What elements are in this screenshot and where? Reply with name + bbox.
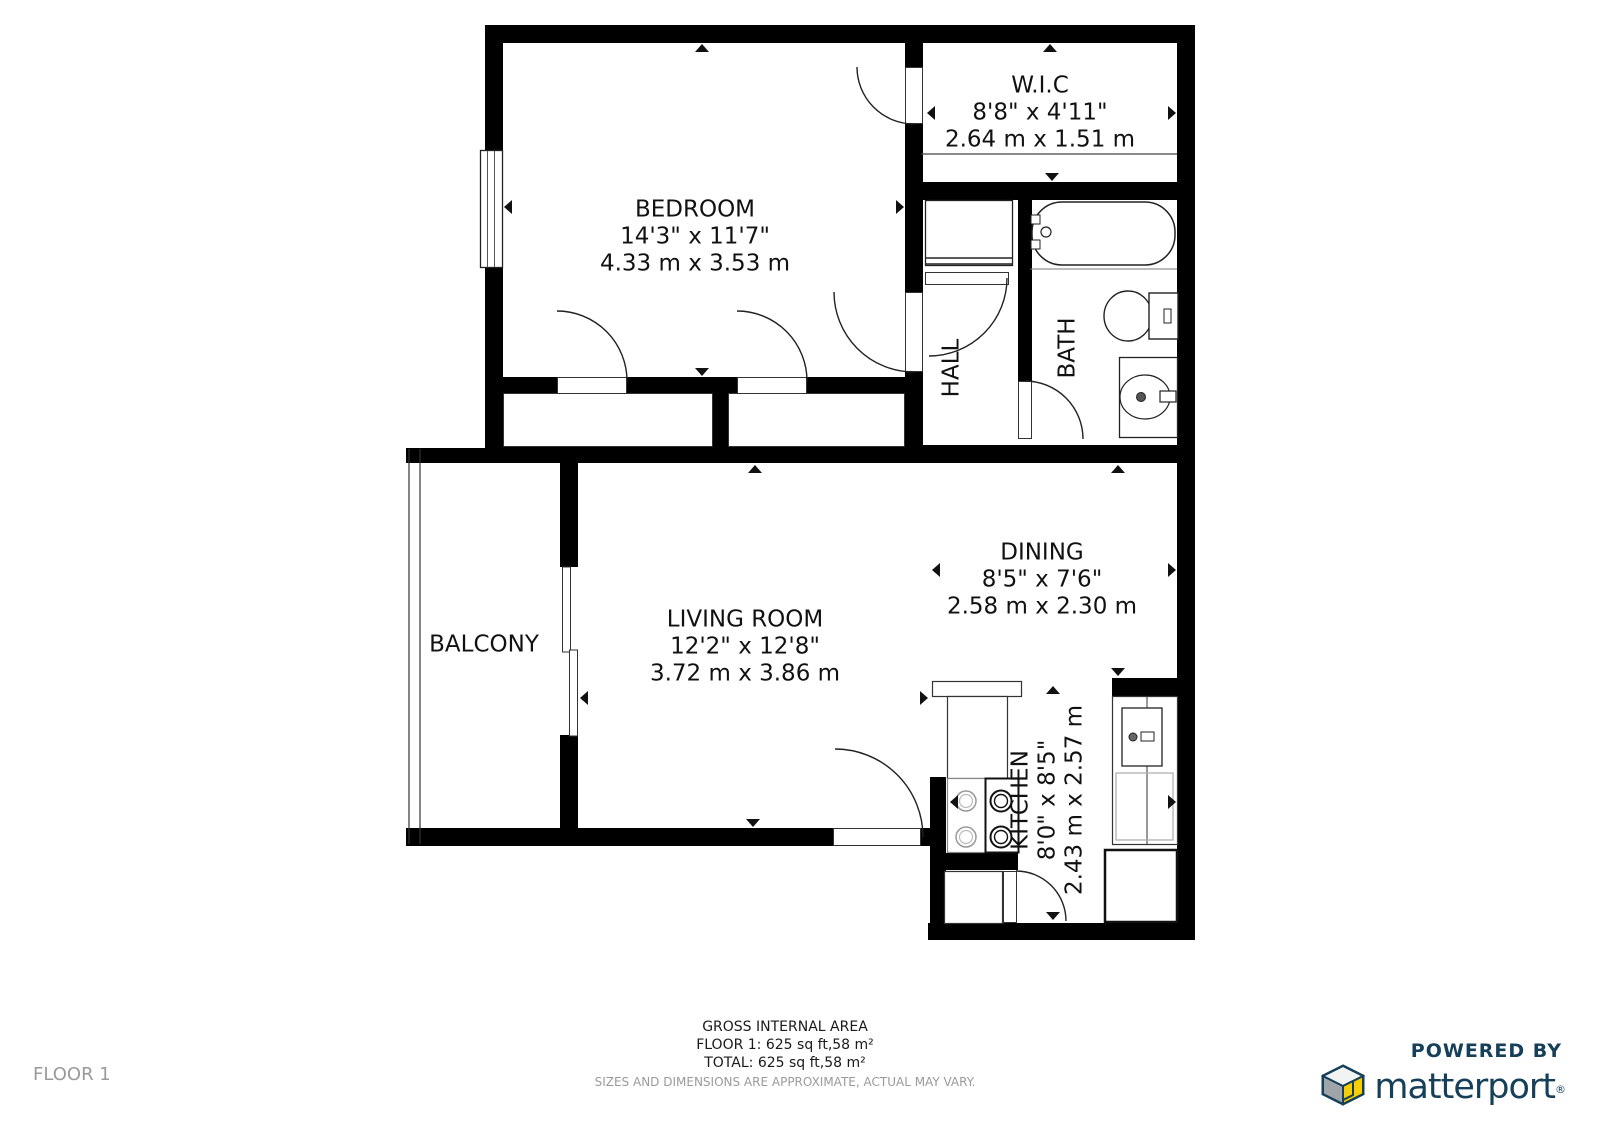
door-leaf-closet1 [557, 377, 627, 394]
wall-bedroom-wic-divider-b [905, 124, 923, 292]
room-label-living: LIVING ROOM 12'2" x 12'8" 3.72 m x 3.86 … [650, 607, 840, 688]
hall-closet-icon [925, 201, 1013, 266]
fixtures-overlay [0, 0, 1600, 1131]
total-area-line: TOTAL: 625 sq ft,58 m² [595, 1054, 976, 1072]
wall-kitchen-bottom [928, 923, 1195, 940]
floorplan-canvas: BEDROOM 14'3" x 11'7" 4.33 m x 3.53 m W.… [0, 0, 1600, 1131]
window-icon [481, 151, 503, 268]
sliding-door-icon [563, 567, 578, 736]
gross-area-title: GROSS INTERNAL AREA [595, 1018, 976, 1036]
matterport-wordmark: matterport [1374, 1070, 1555, 1105]
door-leaf-wic [905, 67, 923, 124]
door-leaf-bedroom [905, 292, 923, 372]
wall-bedroom-bottom-b [627, 377, 737, 393]
bath-sink-icon [1120, 358, 1178, 438]
room-dims-m: 4.33 m x 3.53 m [600, 251, 790, 278]
wall-left-lower [485, 267, 503, 463]
wall-closet-divider [713, 393, 728, 447]
room-name: KITCHEN [1008, 705, 1035, 895]
room-dims-ft: 12'2" x 12'8" [650, 634, 840, 661]
wall-bedroom-wic-divider-a [905, 43, 923, 67]
toilet-icon [1104, 291, 1178, 341]
room-label-kitchen: KITCHEN 8'0" x 8'5" 2.43 m x 2.57 m [1008, 705, 1089, 895]
room-name: W.I.C [945, 73, 1135, 100]
door-arc-bath [1025, 381, 1083, 439]
room-dims-ft: 8'5" x 7'6" [947, 567, 1137, 594]
wall-stove-bottom [930, 853, 1018, 870]
room-name: HALL [939, 339, 966, 398]
door-arc-closet1 [557, 311, 627, 381]
room-label-balcony: BALCONY [429, 632, 539, 659]
floor-label: FLOOR 1 [33, 1064, 111, 1085]
wall-closet-bottom [485, 447, 905, 463]
wall-wic-bottom [905, 182, 1177, 200]
bathtub-icon [1030, 202, 1177, 269]
door-leaf-hall-closet [925, 272, 1009, 285]
wall-bottom-left [406, 828, 833, 846]
wall-bedroom-bottom-c [807, 377, 905, 393]
room-dims-m: 2.58 m x 2.30 m [947, 594, 1137, 621]
room-label-bedroom: BEDROOM 14'3" x 11'7" 4.33 m x 3.53 m [600, 197, 790, 278]
matterport-cube-icon [1320, 1064, 1366, 1110]
door-arc-living-entry [835, 749, 923, 837]
room-dims-ft: 8'8" x 4'11" [945, 100, 1135, 127]
wall-left-upper [485, 25, 503, 151]
floor-area-line: FLOOR 1: 625 sq ft,58 m² [595, 1036, 976, 1054]
room-label-hall: HALL [939, 339, 966, 398]
door-leaf-living-entry [833, 828, 921, 846]
door-leaf-closet2 [737, 377, 807, 394]
powered-by-text: POWERED BY [1320, 1040, 1562, 1062]
wall-balcony-right-upper [560, 448, 578, 567]
registered-symbol: ® [1555, 1084, 1566, 1095]
door-arc-closet2 [737, 311, 807, 381]
door-arc-bedroom [834, 292, 914, 372]
room-label-wic: W.I.C 8'8" x 4'11" 2.64 m x 1.51 m [945, 73, 1135, 154]
wall-dining-top [905, 445, 1177, 463]
room-dims-m: 2.43 m x 2.57 m [1062, 705, 1089, 895]
room-name: DINING [947, 540, 1137, 567]
room-name: BATH [1055, 317, 1082, 378]
room-label-bath: BATH [1055, 317, 1082, 378]
room-label-dining: DINING 8'5" x 7'6" 2.58 m x 2.30 m [947, 540, 1137, 621]
wall-hall-bath-divider [1018, 200, 1032, 381]
door-leaf-bath [1018, 381, 1032, 439]
room-name: BALCONY [429, 632, 539, 659]
room-name: LIVING ROOM [650, 607, 840, 634]
fridge-icon [1105, 850, 1177, 922]
room-dims-m: 3.72 m x 3.86 m [650, 661, 840, 688]
wall-right [1177, 25, 1195, 940]
closet-outlines [504, 394, 905, 447]
room-dims-m: 2.64 m x 1.51 m [945, 127, 1135, 154]
balcony-railing [409, 449, 420, 844]
disclaimer-text: SIZES AND DIMENSIONS ARE APPROXIMATE, AC… [595, 1073, 976, 1091]
room-dims-ft: 8'0" x 8'5" [1035, 705, 1062, 895]
matterport-branding: POWERED BY matterport ® [1320, 1040, 1566, 1110]
room-name: BEDROOM [600, 197, 790, 224]
wall-bedroom-bottom-a [485, 377, 557, 393]
wall-dining-kitchen-stub [1112, 678, 1177, 697]
wall-top [485, 25, 1195, 43]
gross-area-block: GROSS INTERNAL AREA FLOOR 1: 625 sq ft,5… [595, 1018, 976, 1091]
kitchen-sink-icon [1113, 697, 1178, 846]
room-dims-ft: 14'3" x 11'7" [600, 224, 790, 251]
